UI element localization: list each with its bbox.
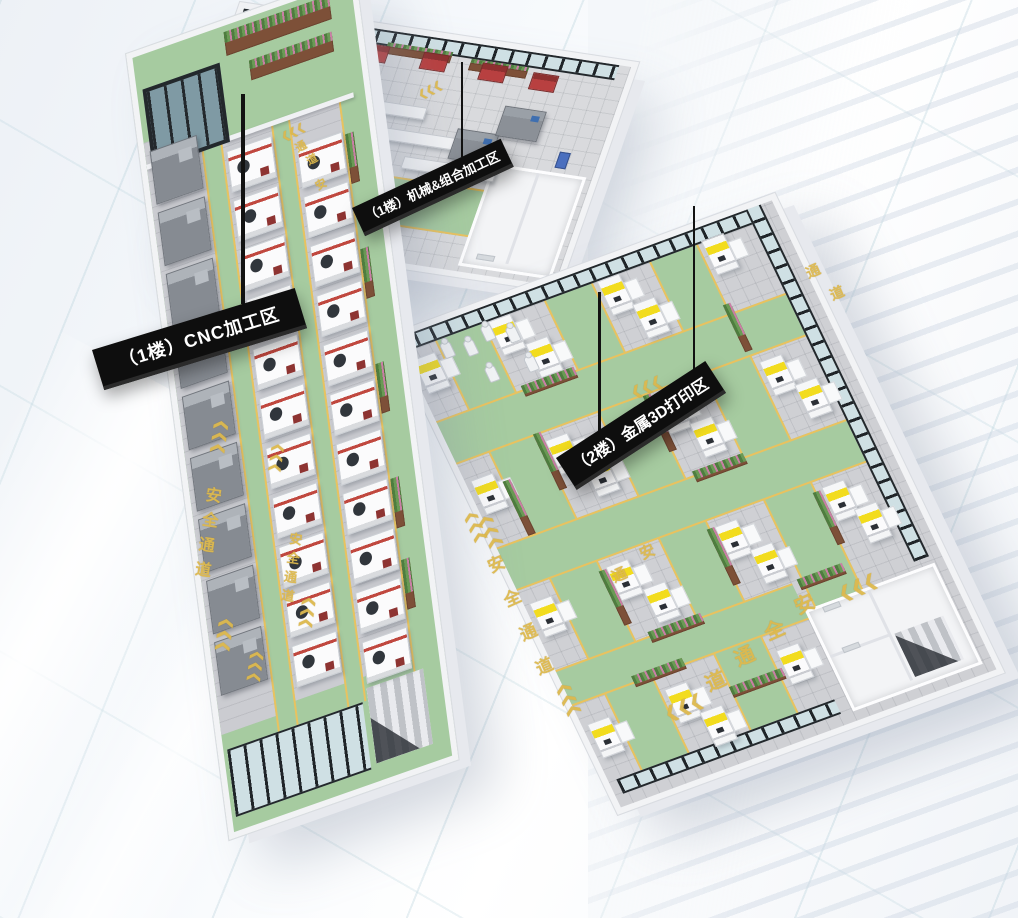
cnc-stairwell bbox=[367, 668, 433, 763]
metal-3d-printer bbox=[470, 473, 509, 516]
print-room-door bbox=[841, 642, 860, 654]
mech-room-inner-wall bbox=[505, 173, 540, 264]
print-room-door bbox=[822, 601, 841, 613]
metal-3d-printer bbox=[529, 595, 568, 638]
banner-wire bbox=[598, 292, 601, 431]
mech-room-door bbox=[476, 253, 496, 261]
banner-wire bbox=[461, 62, 463, 157]
factory-floorplan-scene: （1楼）CNC加工区 （1楼）机械&组合加工区 （2楼）金属3D打印区 安全通道… bbox=[0, 0, 1018, 918]
banner-wire bbox=[693, 206, 695, 369]
metal-3d-printer bbox=[587, 716, 626, 759]
banner-wire bbox=[241, 94, 245, 304]
